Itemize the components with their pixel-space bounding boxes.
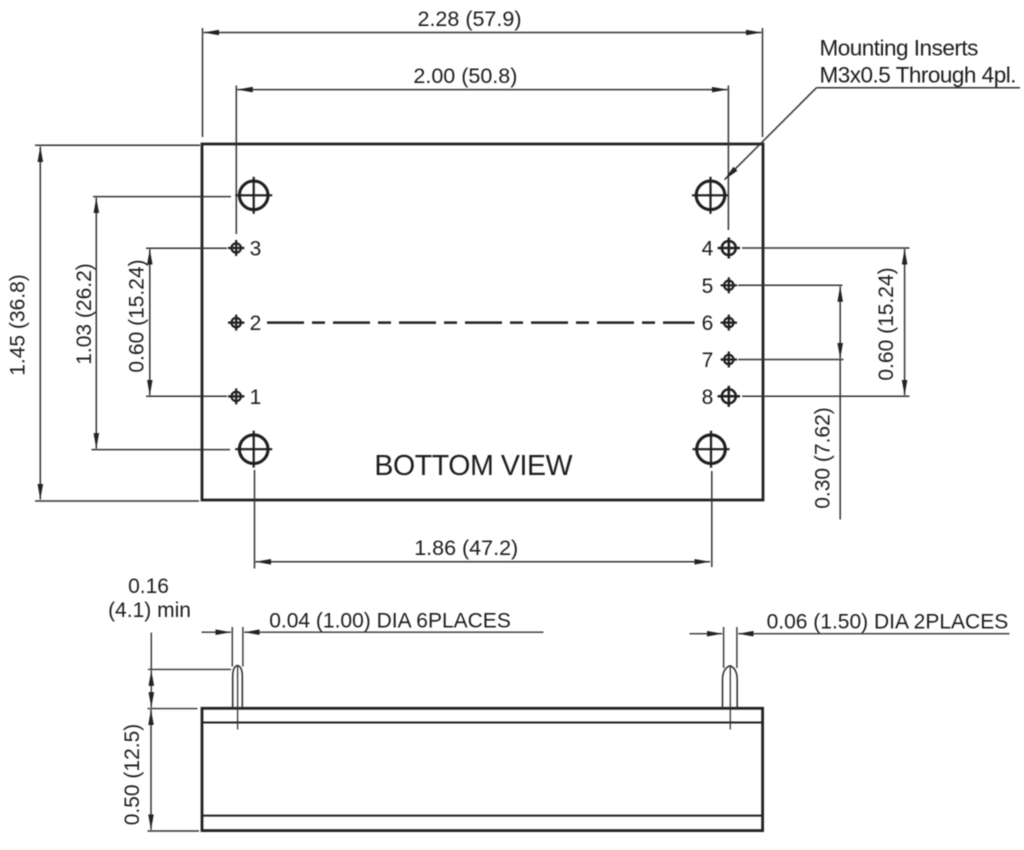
svg-text:0.60 (15.24): 0.60 (15.24) — [126, 259, 149, 372]
svg-text:5: 5 — [702, 275, 714, 298]
svg-text:8: 8 — [702, 386, 714, 409]
svg-text:1: 1 — [250, 386, 262, 409]
svg-text:3: 3 — [250, 238, 262, 261]
svg-text:0.04 (1.00) DIA 6PLACES: 0.04 (1.00) DIA 6PLACES — [269, 609, 511, 632]
svg-text:1.03 (26.2): 1.03 (26.2) — [73, 263, 96, 365]
svg-text:2.00 (50.8): 2.00 (50.8) — [413, 64, 517, 88]
svg-text:2.28 (57.9): 2.28 (57.9) — [418, 7, 522, 31]
svg-text:0.16: 0.16 — [128, 575, 169, 598]
svg-text:(4.1) min: (4.1) min — [108, 599, 191, 622]
svg-text:7: 7 — [702, 349, 714, 372]
svg-text:Mounting Inserts: Mounting Inserts — [820, 35, 979, 60]
svg-text:0.30 (7.62): 0.30 (7.62) — [812, 407, 835, 509]
svg-text:2: 2 — [250, 312, 262, 335]
svg-text:0.50 (12.5): 0.50 (12.5) — [121, 724, 144, 826]
svg-text:6: 6 — [702, 312, 714, 335]
svg-text:4: 4 — [702, 238, 714, 261]
svg-text:0.60 (15.24): 0.60 (15.24) — [875, 267, 898, 380]
svg-text:1.86 (47.2): 1.86 (47.2) — [414, 536, 518, 560]
svg-text:1.45 (36.8): 1.45 (36.8) — [7, 274, 30, 376]
svg-text:0.06 (1.50) DIA 2PLACES: 0.06 (1.50) DIA 2PLACES — [767, 610, 1009, 633]
svg-text:M3x0.5 Through 4pl.: M3x0.5 Through 4pl. — [820, 63, 1016, 88]
svg-text:BOTTOM VIEW: BOTTOM VIEW — [374, 450, 572, 482]
